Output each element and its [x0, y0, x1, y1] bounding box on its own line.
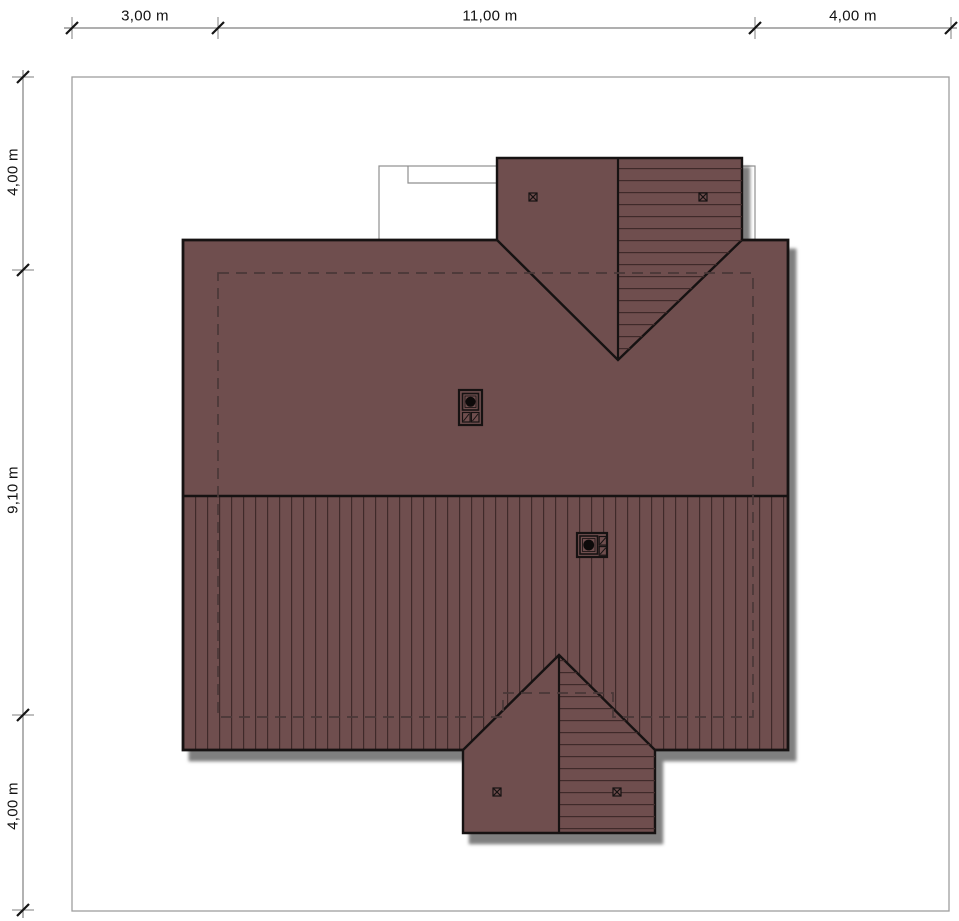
chimney-upper — [459, 390, 482, 425]
chimney-lower — [577, 533, 607, 557]
chimney-flue-circle — [583, 540, 594, 551]
vent-icon — [613, 788, 621, 796]
dim-label-top-right: 4,00 m — [829, 8, 877, 25]
dim-label-top-left: 3,00 m — [121, 8, 169, 25]
vent-icon — [699, 193, 707, 201]
main-roof-lower-slope-hatch — [183, 496, 788, 750]
dim-label-left-lower: 4,00 m — [5, 782, 22, 830]
vent-icon — [529, 193, 537, 201]
roof-group — [183, 158, 788, 833]
dim-label-left-upper: 4,00 m — [5, 148, 22, 196]
dim-label-top-middle: 11,00 m — [462, 8, 517, 25]
chimney-flue-circle — [466, 397, 476, 407]
roof-plan-drawing — [0, 0, 959, 921]
roof-plan-canvas: 3,00 m 11,00 m 4,00 m 4,00 m 9,10 m 4,00… — [0, 0, 959, 921]
vent-icon — [493, 788, 501, 796]
dim-label-left-middle: 9,10 m — [5, 466, 22, 514]
